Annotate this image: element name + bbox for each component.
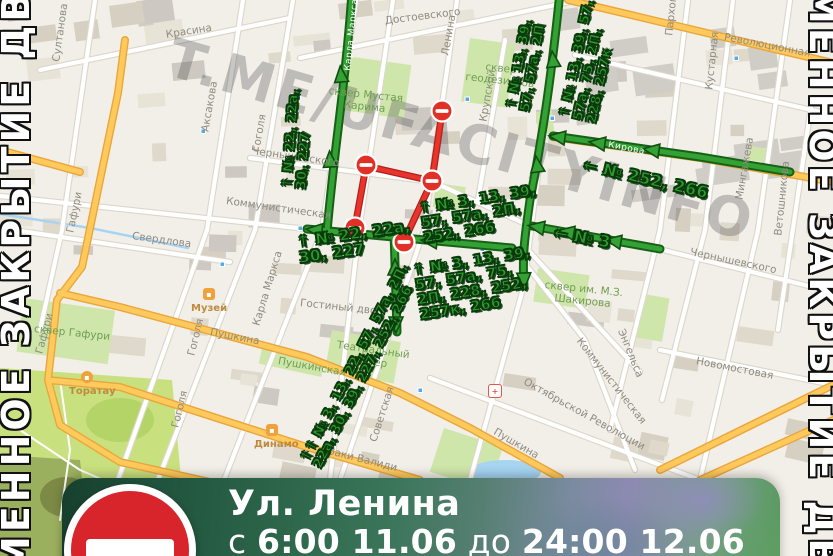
right-edge-watermark: МЕННОЕ ЗАКРЫТИЕ ДВИЖ bbox=[801, 0, 833, 556]
poi-label: Музей bbox=[191, 303, 227, 314]
no-entry-icon bbox=[432, 101, 453, 122]
route-arrow-icon bbox=[529, 155, 545, 173]
road-closure-infographic: T.ME/UFACITYINFO КрасинаДостоевскогоРево… bbox=[0, 0, 833, 556]
schedule-to-label: до bbox=[468, 522, 511, 556]
schedule-from-label: с bbox=[228, 522, 246, 556]
route-arrow-icon bbox=[548, 129, 566, 145]
schedule-from-value: 6:00 11.06 bbox=[257, 522, 457, 556]
museum-icon: ▪ bbox=[203, 288, 215, 300]
stadium-icon: ▪ bbox=[266, 424, 278, 436]
schedule-to-value: 24:00 12.06 bbox=[522, 522, 745, 556]
left-edge-watermark: МЕННОЕ ЗАКРЫТИЕ ДВИЖЕ bbox=[0, 0, 38, 556]
poi-label: Торатау bbox=[69, 386, 116, 397]
banner-schedule: с 6:00 11.06 до 24:00 12.06 bbox=[228, 522, 745, 556]
hospital-icon: + bbox=[488, 384, 502, 398]
mountain-icon: ▪ bbox=[81, 371, 93, 383]
poi-label: Динамо bbox=[254, 439, 299, 450]
no-entry-icon bbox=[422, 171, 443, 192]
route-arrow-icon bbox=[545, 50, 561, 67]
banner-street-title: Ул. Ленина bbox=[228, 484, 460, 524]
no-entry-sign-bar bbox=[86, 539, 174, 556]
no-entry-icon bbox=[356, 155, 377, 176]
